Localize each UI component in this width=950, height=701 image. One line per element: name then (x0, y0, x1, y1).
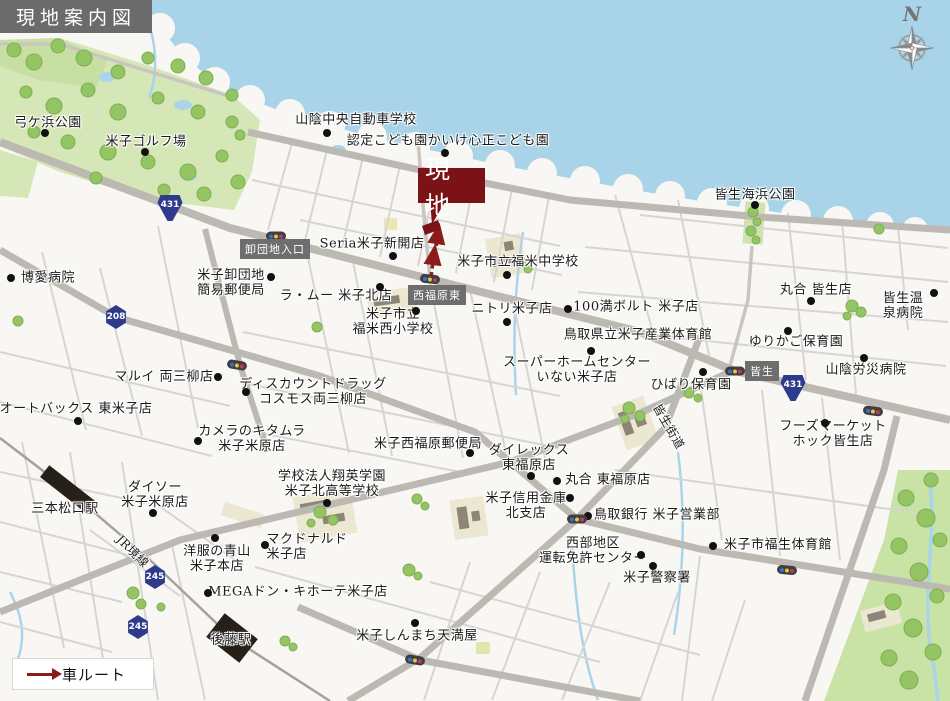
map-label: 米子警察署 (623, 572, 691, 587)
poi-dot (587, 347, 595, 355)
map-label: 米子市立 福米西小学校 (352, 308, 433, 338)
map-label: 山陰中央自動車学校 (295, 114, 417, 129)
poi-dot (41, 129, 49, 137)
traffic-light-icon (725, 367, 745, 376)
poi-dot (7, 274, 15, 282)
traffic-light-icon (862, 405, 883, 417)
map-label: スーパーホームセンター いない米子店 (503, 356, 651, 386)
poi-dot (261, 541, 269, 549)
poi-dot (503, 318, 511, 326)
map-label: 米子信用金庫 北支店 (485, 492, 566, 522)
compass-rose: N (886, 4, 938, 76)
route-shield: 431 (158, 195, 183, 221)
traffic-light-icon (567, 515, 587, 524)
map-label: 皆生温泉病院 (880, 292, 927, 322)
poi-dot (323, 499, 331, 507)
map-label: ラ・ムー 米子北店 (280, 290, 393, 305)
poi-dot (412, 307, 420, 315)
route-legend-label: 車ルート (62, 664, 126, 685)
poi-dot (527, 472, 535, 480)
poi-dot (149, 509, 157, 517)
map-title-bar: 現地案内図 (0, 0, 152, 33)
poi-dot (214, 373, 222, 381)
poi-dot (930, 289, 938, 297)
poi-dot (204, 589, 212, 597)
map-label: 洋服の青山 米子本店 (183, 545, 251, 575)
map-label: MEGAドン・キホーテ米子店 (208, 586, 388, 601)
route-arrow-icon (27, 673, 53, 676)
poi-dot (376, 283, 384, 291)
compass-rose-icon (888, 24, 936, 72)
map-label: 鳥取銀行 米子営業部 (594, 509, 720, 524)
poi-dot (194, 437, 202, 445)
route-shield: 245 (127, 615, 149, 639)
site-marker-callout: 現地 (418, 168, 485, 203)
route-shield: 208 (105, 305, 127, 329)
site-guide-map: 弓ケ浜公園米子ゴルフ場山陰中央自動車学校認定こども園かいけ心正こども園皆生海浜公… (0, 0, 950, 701)
poi-dot (466, 449, 474, 457)
traffic-light-icon (420, 273, 441, 284)
map-label: ゆりかご保育園 (749, 336, 844, 351)
map-label: フーズマーケットホック皆生店 (775, 420, 892, 450)
map-label: 認定こども園かいけ心正こども園 (347, 135, 550, 150)
map-label: ディスカウントドラッグ コスモス両三柳店 (239, 378, 387, 408)
poi-dot (784, 327, 792, 335)
poi-dot (751, 201, 759, 209)
map-label: 博愛病院 (21, 272, 75, 287)
poi-dot (807, 297, 815, 305)
map-label: マクドナルド 米子店 (266, 533, 347, 563)
poi-dot (564, 305, 572, 313)
road-sign-box: 卸団地入口 (240, 239, 310, 259)
site-marker-label: 現地 (425, 150, 485, 222)
poi-dot (860, 354, 868, 362)
map-label: 米子しんまち天満屋 (356, 630, 478, 645)
poi-dot (503, 271, 511, 279)
map-label: 山陰労災病院 (825, 364, 906, 379)
compass-north-label: N (886, 4, 938, 24)
map-labels-layer: 弓ケ浜公園米子ゴルフ場山陰中央自動車学校認定こども園かいけ心正こども園皆生海浜公… (0, 0, 950, 701)
traffic-light-icon (404, 654, 425, 666)
poi-dot (211, 534, 219, 542)
poi-dot (141, 148, 149, 156)
map-label: ニトリ米子店 (471, 303, 552, 318)
map-label: マルイ 両三柳店 (114, 371, 213, 386)
poi-dot (566, 494, 574, 502)
page-title: 現地案内図 (16, 3, 136, 30)
poi-dot (649, 562, 657, 570)
map-label: 丸合 東福原店 (565, 474, 651, 489)
map-label: 米子市福生体育館 (724, 539, 832, 554)
route-legend: 車ルート (12, 658, 154, 690)
map-label: 皆生街道 (650, 402, 687, 452)
map-label: オートバックス 東米子店 (0, 403, 152, 418)
map-label: 米子市立福米中学校 (457, 256, 579, 271)
poi-dot (242, 388, 250, 396)
poi-dot (709, 542, 717, 550)
poi-dot (699, 368, 707, 376)
map-label: 米子卸団地 簡易郵便局 (197, 269, 265, 299)
map-label: 後藤駅 (211, 634, 252, 649)
traffic-light-icon (226, 359, 247, 371)
road-sign-box: 皆生 (745, 361, 779, 381)
poi-dot (267, 273, 275, 281)
route-shield: 431 (781, 375, 806, 401)
poi-dot (74, 417, 82, 425)
traffic-light-icon (777, 565, 798, 576)
map-label: 100満ボルト 米子店 (573, 301, 698, 316)
map-label: ダイソー 米子米原店 (121, 481, 189, 511)
poi-dot (553, 477, 561, 485)
poi-dot (411, 619, 419, 627)
map-label: JR境線 (113, 533, 151, 571)
map-label: 丸合 皆生店 (780, 284, 852, 299)
map-label: ダイレックス 東福原店 (489, 444, 570, 474)
poi-dot (389, 252, 397, 260)
map-label: 学校法人翔英学園 米子北高等学校 (278, 470, 386, 500)
map-label: 鳥取県立米子産業体育館 (564, 329, 713, 344)
poi-dot (821, 419, 829, 427)
map-label: カメラのキタムラ 米子米原店 (198, 425, 305, 455)
map-label: Seria米子新開店 (320, 238, 425, 253)
route-shield: 245 (144, 565, 166, 589)
map-label: 西部地区 運転免許センター (539, 537, 647, 567)
map-label: 三本松口駅 (31, 503, 99, 518)
poi-dot (323, 129, 331, 137)
road-sign-box: 西福原東 (408, 285, 466, 305)
map-label: ひばり保育園 (650, 379, 731, 394)
poi-dot (637, 551, 645, 559)
map-label: 弓ケ浜公園 (14, 117, 82, 132)
